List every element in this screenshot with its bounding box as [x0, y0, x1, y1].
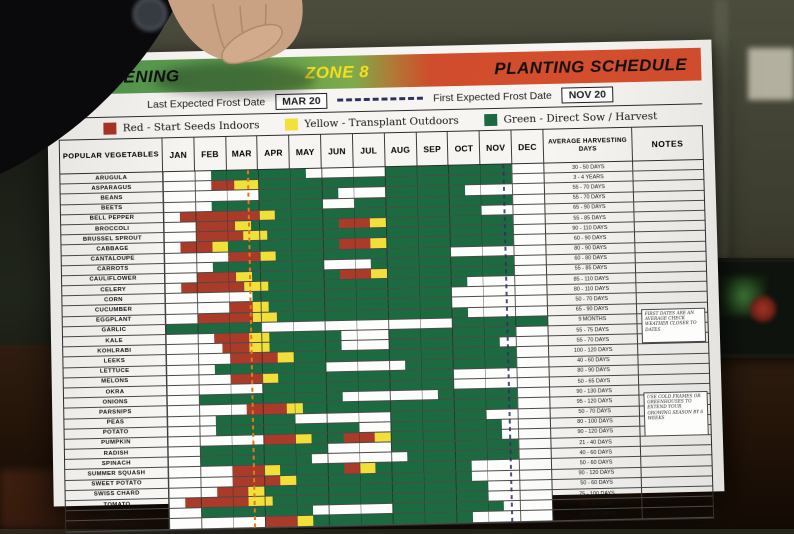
month-header-oct: OCT	[448, 131, 481, 165]
notes-cell	[643, 507, 714, 518]
notes-cell	[634, 201, 704, 212]
notes-cell	[636, 282, 706, 293]
start-indoors-bar	[198, 313, 254, 323]
start-indoors-bar	[222, 343, 249, 353]
transplant-bar	[295, 434, 311, 444]
transplant-bar	[375, 432, 391, 442]
notes-cell	[639, 374, 709, 385]
start-indoors-bar	[344, 464, 360, 474]
transplant-bar	[235, 221, 251, 231]
transplant-bar	[235, 180, 259, 190]
direct-sow-harvest-bar	[385, 186, 464, 197]
start-indoors-bar	[230, 353, 278, 363]
transplant-bar	[249, 343, 270, 353]
notes-cell	[635, 221, 705, 232]
yellow-swatch-icon	[285, 118, 298, 130]
vegetable-name: WINTER SQUASH	[66, 519, 170, 531]
transplant-bar	[212, 242, 228, 252]
start-indoors-bar	[214, 333, 249, 343]
month-header-sep: SEP	[416, 132, 449, 166]
red-swatch-icon	[104, 122, 117, 134]
transplant-bar	[280, 475, 296, 485]
notes-cell	[635, 241, 705, 252]
notes-cell	[639, 364, 709, 375]
planting-table: POPULAR VEGETABLES JANFEBMARAPRMAYJUNJUL…	[59, 126, 714, 533]
month-header-mar: MAR	[226, 136, 258, 170]
month-header-apr: APR	[258, 136, 290, 170]
transplant-bar	[253, 312, 277, 322]
notes-cell	[634, 211, 704, 222]
transplant-bar	[360, 463, 376, 473]
direct-sow-harvest-bar	[215, 414, 295, 425]
month-header-nov: NOV	[480, 130, 513, 164]
month-header-feb: FEB	[194, 137, 226, 171]
notes-cell	[636, 251, 706, 262]
green-swatch-icon	[485, 113, 498, 125]
start-indoors-bar	[230, 374, 262, 384]
note-annotation: USE COLD FRAMES OR GREENHOUSES TO EXTEND…	[643, 391, 708, 436]
start-indoors-bar	[180, 242, 212, 252]
notes-cell	[638, 343, 708, 354]
notes-cell	[641, 435, 711, 446]
table-body: ARUGULA30 - 50 DAYSASPARAGUS3 - 4 YEARSB…	[60, 160, 713, 532]
notes-cell	[633, 160, 703, 171]
start-indoors-bar	[185, 497, 249, 508]
month-header-may: MAY	[289, 135, 321, 169]
start-indoors-bar	[338, 218, 370, 228]
direct-sow-harvest-bar	[259, 189, 338, 200]
start-indoors-bar	[181, 282, 245, 293]
transplant-bar	[264, 466, 280, 476]
notes-cell	[641, 466, 711, 477]
transplant-bar	[371, 269, 387, 279]
notes-cell	[642, 497, 713, 508]
frost-dashed-line	[337, 97, 423, 102]
first-frost-label: First Expected Frost Date	[433, 89, 552, 104]
start-indoors-bar	[197, 272, 237, 282]
transplant-bar	[245, 282, 269, 292]
start-indoors-bar	[196, 221, 236, 231]
start-indoors-bar	[228, 251, 260, 261]
transplant-bar	[249, 333, 270, 343]
start-indoors-bar	[247, 404, 287, 414]
month-header-aug: AUG	[385, 133, 418, 167]
start-indoors-bar	[265, 516, 297, 526]
vegetables-column-header: POPULAR VEGETABLES	[63, 151, 159, 161]
notes-cell	[638, 353, 708, 364]
start-indoors-bar	[217, 487, 249, 497]
direct-sow-harvest-bar	[280, 464, 344, 475]
legend-label: Yellow - Transplant Outdoors	[304, 114, 459, 129]
start-indoors-bar	[229, 302, 253, 312]
transplant-bar	[278, 353, 294, 363]
legend-item-red: Red - Start Seeds Indoors	[104, 119, 260, 134]
start-indoors-bar	[196, 231, 244, 241]
start-indoors-bar	[340, 269, 372, 279]
start-indoors-bar	[232, 466, 264, 476]
start-indoors-bar	[233, 476, 281, 486]
transplant-bar	[249, 486, 265, 496]
transplant-bar	[297, 516, 313, 526]
legend-item-green: Green - Direct Sow / Harvest	[485, 110, 658, 126]
start-indoors-bar	[211, 181, 235, 191]
last-frost-label: Last Expected Frost Date	[147, 96, 265, 111]
harvest-days: 95 - 115 DAYS	[552, 509, 643, 520]
transplant-bar	[260, 251, 276, 261]
transplant-bar	[287, 403, 303, 413]
poster-title: PLANTING SCHEDULE	[494, 54, 687, 78]
notes-cell	[642, 486, 713, 497]
notes-cell	[641, 445, 711, 456]
brand-title: GARDENING	[71, 66, 179, 88]
month-header-jun: JUN	[321, 134, 353, 168]
legend-label: Green - Direct Sow / Harvest	[503, 110, 657, 125]
month-header-dec: DEC	[512, 130, 545, 164]
direct-sow-harvest-bar	[270, 341, 342, 352]
transplant-bar	[259, 210, 275, 220]
month-header-jul: JUL	[353, 133, 385, 167]
harvest-column-header: AVERAGE HARVESTING DAYS	[544, 137, 632, 153]
note-annotation: FIRST DATES ARE AN AVERAGE CHECK WEATHER…	[641, 308, 706, 344]
transplant-bar	[371, 238, 387, 248]
transplant-bar	[249, 496, 273, 506]
start-indoors-bar	[343, 433, 375, 443]
notes-column-header: NOTES	[651, 138, 683, 149]
notes-cell	[634, 180, 704, 191]
notes-cell	[635, 231, 705, 242]
notes-cell	[641, 456, 711, 467]
month-header-jan: JAN	[162, 138, 194, 172]
notes-cell	[633, 170, 703, 181]
notes-cell	[634, 190, 704, 201]
notes-cell	[642, 476, 713, 487]
last-frost-value: MAR 20	[275, 92, 328, 109]
direct-sow-harvest-bar	[438, 388, 518, 399]
direct-sow-harvest-bar	[311, 433, 343, 443]
first-frost-value: NOV 20	[562, 86, 614, 103]
transplant-bar	[236, 272, 252, 282]
transplant-bar	[262, 373, 278, 383]
start-indoors-bar	[264, 434, 296, 444]
notes-cell	[637, 292, 707, 303]
legend-label: Red - Start Seeds Indoors	[123, 119, 260, 134]
picture-content	[750, 296, 776, 322]
notes-cell	[636, 262, 706, 273]
start-indoors-bar	[180, 211, 259, 222]
transplant-bar	[370, 218, 386, 228]
transplant-bar	[244, 231, 268, 241]
start-indoors-bar	[339, 239, 371, 249]
transplant-bar	[253, 302, 269, 312]
planting-schedule-poster: GARDENING ZONE 8 PLANTING SCHEDULE Last …	[46, 40, 724, 507]
direct-sow-harvest-bar	[269, 331, 341, 342]
zone-label: ZONE 8	[305, 62, 370, 83]
wall-corner-highlight	[748, 48, 794, 100]
legend-item-yellow: Yellow - Transplant Outdoors	[285, 114, 459, 130]
notes-cell	[636, 272, 706, 283]
